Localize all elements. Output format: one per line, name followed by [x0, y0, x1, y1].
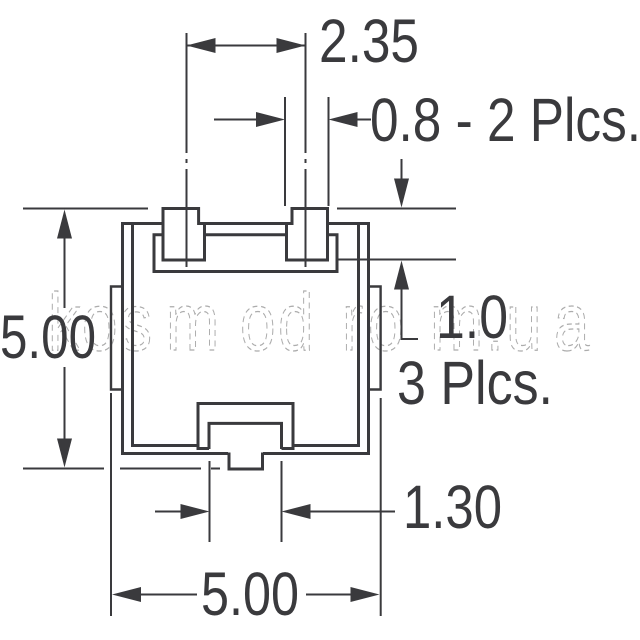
- svg-text:3 Plcs.: 3 Plcs.: [397, 349, 553, 418]
- svg-text:2.35: 2.35: [319, 7, 419, 76]
- svg-text:0.8 - 2 Plcs.: 0.8 - 2 Plcs.: [370, 86, 640, 155]
- svg-text:1.0: 1.0: [436, 283, 508, 352]
- svg-text:5.00: 5.00: [201, 560, 299, 629]
- svg-text:5.00: 5.00: [0, 303, 96, 372]
- svg-text:1.30: 1.30: [403, 473, 502, 542]
